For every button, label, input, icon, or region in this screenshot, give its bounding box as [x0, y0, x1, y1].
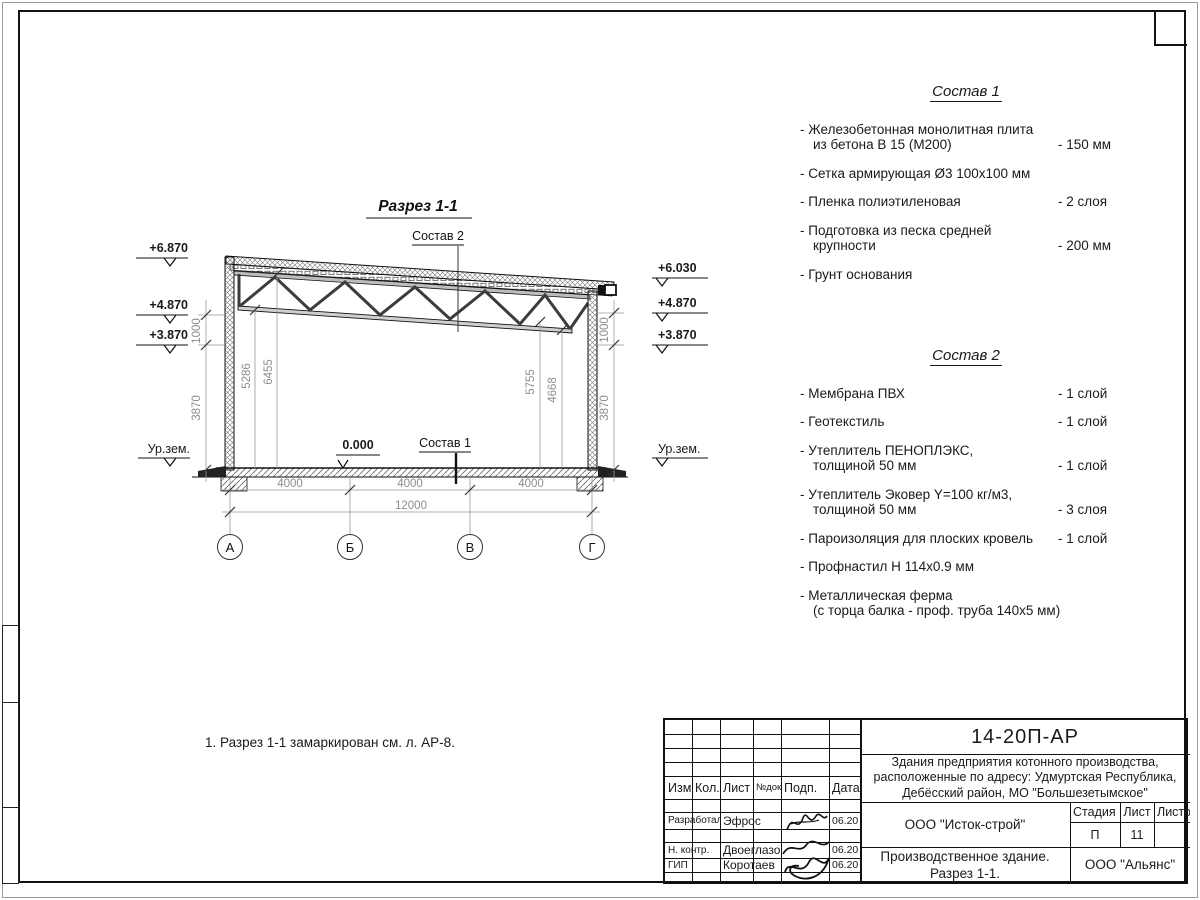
axis-v: В	[466, 540, 475, 555]
left-ground-wedge	[198, 466, 226, 477]
truss-right-brace	[570, 303, 588, 329]
floor-slab	[216, 468, 606, 477]
list-item: - Мембрана ПВХ - 1 слой	[800, 386, 1132, 402]
dim-total: 12000	[395, 500, 427, 512]
left-wall	[225, 257, 234, 470]
drawing-sheet: Разрез 1-1 +6.870 +4.870 +3.87	[0, 0, 1200, 900]
list-item: - Грунт основания	[800, 267, 1132, 283]
tb-date-gip: 06.20	[829, 858, 860, 872]
tb-header-podp: Подп.	[781, 776, 829, 799]
tb-date-ncontrol: 06.20	[829, 842, 860, 858]
tb-org-customer: ООО "Альянс"	[1070, 847, 1190, 882]
list-item: - Утеплитель Эковер Y=100 кг/м3, толщино…	[800, 487, 1132, 518]
list-item: - Утеплитель ПЕНОПЛЭКС, толщиной 50 мм -…	[800, 443, 1132, 474]
left-foundation	[221, 477, 247, 491]
signature-developer	[783, 808, 829, 836]
tb-name-gip: Коротаев	[720, 858, 781, 872]
list-item: - Геотекстиль - 1 слой	[800, 414, 1132, 430]
tb-doc-number: 14-20П-АР	[860, 720, 1190, 754]
sostav1-list: Состав 1 - Железобетонная монолитная пли…	[800, 84, 1132, 295]
elevation-left-3: +3.870	[149, 328, 188, 342]
corner-reference-box	[1154, 10, 1187, 46]
dim-left-3870: 3870	[191, 395, 203, 421]
title-block: Изм. Кол. Лист №док. Подп. Дата Разработ…	[663, 718, 1188, 884]
left-margin-box-2	[2, 702, 19, 808]
tb-header-sheet: Лист	[1120, 802, 1154, 822]
sostav1-callout: Состав 1	[419, 436, 471, 450]
tb-project-name: Здания предприятия котонного производств…	[860, 754, 1190, 802]
list-item: - Подготовка из песка средней крупности …	[800, 223, 1132, 254]
signature-ncontrol-gip	[777, 838, 833, 882]
dim-span-1: 4000	[277, 478, 303, 490]
roof-edge-beam-dark	[598, 285, 605, 295]
elevation-left-1: +6.870	[149, 241, 188, 255]
dim-span-3: 4000	[518, 478, 544, 490]
right-wall	[588, 291, 597, 470]
axis-g: Г	[588, 540, 595, 555]
axis-a: А	[226, 540, 235, 555]
axis-bubbles: А Б В Г	[218, 535, 605, 560]
dim-right-3870: 3870	[599, 395, 611, 421]
elevation-marks-left: +6.870 +4.870 +3.870 Ур.зем.	[136, 241, 190, 466]
tb-subtitle: Производственное здание. Разрез 1-1.	[860, 847, 1070, 882]
sostav1-title: Состав 1	[800, 84, 1132, 100]
list-item: - Железобетонная монолитная плита из бет…	[800, 122, 1132, 153]
tb-header-stage: Стадия	[1070, 802, 1120, 822]
tb-name-ncontrol: Двоеглазов	[720, 842, 781, 858]
axis-b: Б	[346, 540, 355, 555]
tb-sheet-value: 11	[1120, 822, 1154, 847]
dim-interior-5286: 5286	[241, 363, 253, 389]
tb-org-designer: ООО "Исток-строй"	[860, 802, 1070, 847]
list-item: - Сетка армирующая Ø3 100х100 мм	[800, 166, 1132, 182]
zero-level-label: 0.000	[342, 438, 373, 452]
elevation-right-1: +6.030	[658, 261, 697, 275]
list-item: - Профнастил Н 114х0.9 мм	[800, 559, 1132, 575]
tb-name-developer: Эфрос	[720, 812, 781, 829]
drawing-note: 1. Разрез 1-1 замаркирован см. л. АР-8.	[205, 735, 455, 750]
elevation-left-2: +4.870	[149, 298, 188, 312]
tb-stage-value: П	[1070, 822, 1120, 847]
left-margin-box-1	[2, 625, 19, 703]
zero-level-arrow	[338, 460, 348, 468]
dim-interior-6455: 6455	[263, 359, 275, 385]
roof-edge-beam	[605, 285, 616, 295]
section-drawing: Разрез 1-1 +6.870 +4.870 +3.87	[100, 190, 730, 575]
tb-header-izm: Изм.	[665, 776, 692, 799]
dim-span-2: 4000	[397, 478, 423, 490]
list-item: - Металлическая ферма (с торца балка - п…	[800, 588, 1132, 619]
tb-date-developer: 06.20	[829, 812, 860, 829]
tb-header-sheets: Листов	[1154, 802, 1190, 822]
dim-right-1000: 1000	[599, 317, 611, 343]
tb-header-list: Лист	[720, 776, 753, 799]
tb-role-developer: Разработал	[665, 812, 720, 829]
left-margin-box-3	[2, 807, 19, 884]
elevation-right-2: +4.870	[658, 296, 697, 310]
elevation-marks-right: +6.030 +4.870 +3.870 Ур.зем.	[652, 261, 708, 466]
sostav2-title: Состав 2	[800, 348, 1132, 364]
tb-header-ndok: №док.	[753, 776, 781, 799]
dim-interior-4668: 4668	[547, 377, 559, 403]
sostav2-callout: Состав 2	[412, 229, 464, 243]
right-foundation	[577, 477, 603, 491]
dim-left-1000: 1000	[191, 318, 203, 344]
dim-interior-5755: 5755	[525, 369, 537, 395]
elevation-right-3: +3.870	[658, 328, 697, 342]
tb-role-ncontrol: Н. контр.	[665, 842, 720, 858]
sostav2-list: Состав 2 - Мембрана ПВХ - 1 слой - Геоте…	[800, 348, 1132, 632]
tb-role-gip: ГИП	[665, 858, 720, 872]
ground-label-right: Ур.зем.	[658, 442, 700, 456]
drawing-title: Разрез 1-1	[378, 198, 458, 215]
list-item: - Пароизоляция для плоских кровель - 1 с…	[800, 531, 1132, 547]
tb-header-data: Дата	[829, 776, 860, 799]
tb-sheets-value	[1154, 822, 1190, 847]
ground-label-left: Ур.зем.	[148, 442, 190, 456]
tb-header-kol: Кол.	[692, 776, 720, 799]
list-item: - Пленка полиэтиленовая - 2 слоя	[800, 194, 1132, 210]
